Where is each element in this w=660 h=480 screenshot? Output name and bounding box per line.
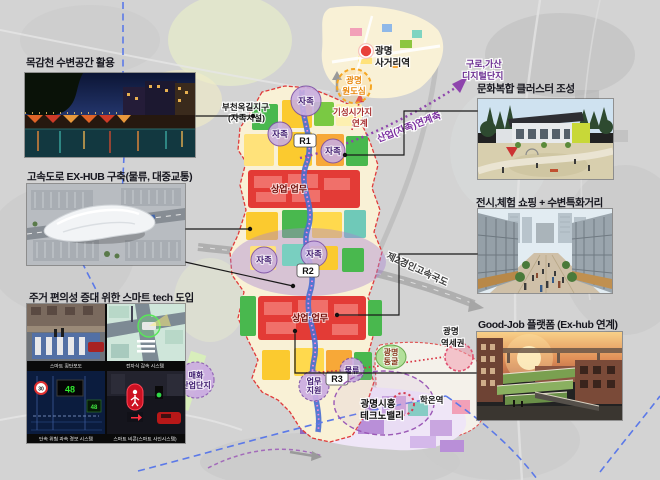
station-label: 사거리역: [375, 57, 410, 69]
right-building: [572, 213, 612, 293]
technovalley-label: 테크노밸리: [360, 410, 404, 422]
speed-sign-30: 30: [38, 387, 44, 393]
callout-title-goodjob: Good-Job 플랫폼 (Ex-hub 연계): [478, 317, 618, 332]
cave-label: 동굴: [384, 357, 399, 366]
callout-title-waterfront: 목감천 수변공간 활용: [26, 55, 114, 70]
caption-speed-sensing: 전자식 감속 시스템: [126, 363, 164, 370]
jajok-label: 자족: [325, 146, 341, 156]
technovalley-label: 광명시흥: [361, 398, 396, 410]
river-night: [25, 129, 195, 157]
commerce-label: 상업·업무: [292, 312, 328, 323]
jajok-label: 자족: [272, 129, 288, 139]
bucheon-label: (자족시설): [228, 113, 265, 123]
plaza: [478, 142, 613, 179]
speed-led-48: 48: [65, 385, 75, 395]
photo-waterfront-night: [25, 73, 195, 157]
digital-complex-label: 디지털단지: [462, 70, 503, 81]
photo-exhub: [27, 184, 185, 265]
station-area-label: 광명: [443, 326, 459, 336]
r3-label: R3: [331, 374, 343, 384]
r2-label: R2: [302, 266, 314, 276]
hakon-station-label: 학온역: [420, 395, 443, 405]
biz-support-label: 지원: [307, 385, 322, 395]
left-building: [478, 213, 518, 293]
jajok-label: 자족: [306, 249, 322, 259]
exhibition-scene: [478, 209, 612, 293]
caption-smart-beacon: 스마트 비콘(스마트 사인시스템): [113, 436, 177, 443]
waterfront-scene: [25, 73, 195, 157]
market-stalls: [25, 113, 195, 129]
jajok-label: 자족: [298, 96, 314, 106]
r1-label: R1: [299, 136, 311, 146]
station-label: 광명: [375, 45, 392, 57]
existing-link-label: 연계: [352, 118, 368, 128]
goodjob-scene: [477, 332, 622, 420]
station-area-label: 역세권: [441, 338, 465, 348]
photo-culture-cluster: [478, 99, 613, 179]
jajok-label: 자족: [256, 255, 272, 265]
exhub-scene: [27, 184, 185, 265]
photo-goodjob-platform: [477, 332, 622, 420]
maehwa-label: 산업단지: [181, 380, 210, 390]
photo-exhibition-street: [478, 209, 612, 293]
old-town-label: 원도심: [342, 86, 365, 96]
callout-title-smarttech: 주거 편의성 증대 위한 스마트 tech 도입: [29, 290, 194, 305]
cave-label: 광명: [384, 347, 399, 357]
biz-support-label: 업무: [307, 376, 322, 386]
digital-complex-label: 구로,가산: [466, 58, 502, 69]
speed-led-48-small: 48: [91, 405, 98, 411]
caption-speed-warning: 단속 위험 과속 경보 시스템: [39, 436, 93, 443]
gwangmyeong-crossroads-station-marker: [358, 43, 374, 59]
maehwa-label: 매화: [189, 370, 204, 380]
old-town-label: 광명: [346, 75, 362, 85]
planning-slide: 자족 자족 자족 자족 자족 물류 업무 지원 R1 R2 R3 광명 사거리역: [0, 0, 660, 480]
smarttech-panels: 스마트 횡단보도 전자식 감속 시스템 30 48 48: [27, 304, 185, 443]
commerce-label: 상업·업무: [271, 183, 307, 194]
caption-smart-crosswalk: 스마트 횡단보도: [50, 363, 83, 370]
panel-speed-sensing: [106, 304, 185, 361]
photo-smarttech: 스마트 횡단보도 전자식 감속 시스템 30 48 48: [27, 304, 185, 443]
callout-title-exhub: 고속도로 EX-HUB 구축(물류, 대중교통): [27, 169, 192, 184]
callout-title-culture: 문화복합 클러스터 조성: [477, 81, 575, 96]
bucheon-label: 부천옥길지구: [222, 102, 269, 112]
panel-speed-warning: 30 48 48: [27, 370, 106, 434]
callout-title-exhibition: 전시,체험 쇼핑 + 수변특화거리: [476, 195, 603, 210]
panel-smart-beacon: [106, 370, 185, 434]
culture-scene: [478, 99, 613, 179]
panel-smart-crosswalk: [27, 304, 106, 361]
existing-link-label: 기성시가지: [333, 107, 372, 117]
